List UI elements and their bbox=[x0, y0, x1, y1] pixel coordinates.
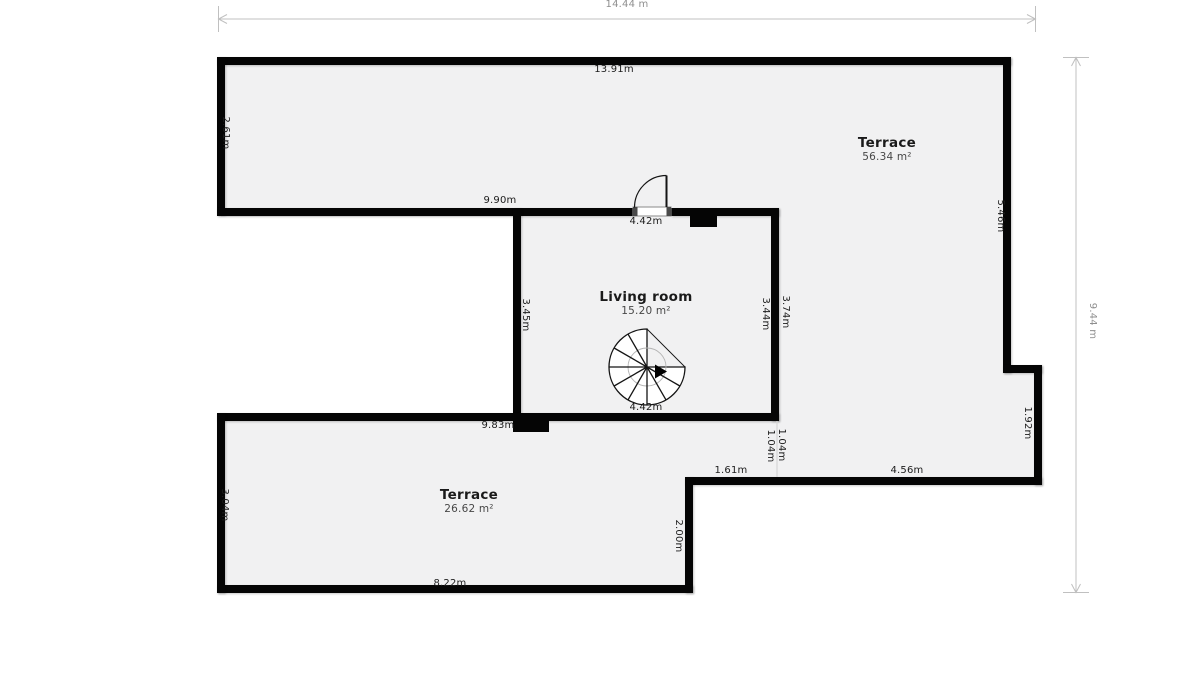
room-label-terrace-lower: Terrace bbox=[440, 487, 498, 503]
dim-lower-inner: 2.00m bbox=[673, 519, 683, 552]
dimension-arrow-icon bbox=[219, 15, 228, 24]
dim-living-bottom: 4.42m bbox=[629, 403, 662, 413]
room-label-terrace-upper: Terrace bbox=[858, 135, 916, 151]
room-area-living-room: 15.20 m² bbox=[621, 305, 670, 317]
dim-bottom-wall: 8.22m bbox=[433, 579, 466, 589]
wall-stub-upper[interactable] bbox=[690, 216, 717, 227]
floor-plan-canvas: 14.44 m 9.44 m 13.91m 2.61m 9.90m 4.42m … bbox=[0, 0, 1200, 675]
dimension-arrow-icon bbox=[1072, 58, 1081, 67]
wall-mid-upper-left[interactable] bbox=[217, 208, 634, 216]
dimension-arrow-icon bbox=[1072, 584, 1081, 593]
dim-step-right: 4.56m bbox=[890, 466, 923, 476]
wall-mid-upper-right[interactable] bbox=[671, 208, 779, 216]
dim-mid-wall: 9.90m bbox=[483, 196, 516, 206]
dim-living-right-outer: 3.74m bbox=[780, 295, 790, 328]
dim-lower-mid-wall: 9.83m bbox=[481, 421, 514, 431]
dim-living-left: 3.45m bbox=[520, 298, 530, 331]
wall-stub-lower[interactable] bbox=[513, 421, 549, 432]
dim-lower-left: 3.04m bbox=[219, 488, 229, 521]
dimension-line-right bbox=[1063, 58, 1089, 593]
dim-right-step: 1.92m bbox=[1022, 406, 1032, 439]
dim-seg-outer: 1.04m bbox=[776, 428, 786, 461]
wall-living-right[interactable] bbox=[771, 208, 779, 421]
floor-terrace-upper-right[interactable] bbox=[779, 215, 1007, 423]
dim-upper-left: 2.61m bbox=[220, 116, 230, 149]
room-label-living-room: Living room bbox=[599, 289, 692, 305]
dim-upper-right: 5.46m bbox=[995, 199, 1005, 232]
dim-door-width: 4.42m bbox=[629, 217, 662, 227]
dim-living-right-inner: 3.44m bbox=[760, 297, 770, 330]
room-area-terrace-upper: 56.34 m² bbox=[862, 151, 911, 163]
room-area-terrace-lower: 26.62 m² bbox=[444, 503, 493, 515]
dim-step-left: 1.61m bbox=[714, 466, 747, 476]
wall-step-bottom[interactable] bbox=[685, 477, 1042, 485]
dimension-arrow-icon bbox=[1027, 15, 1036, 24]
wall-right-lower[interactable] bbox=[1034, 365, 1042, 485]
dim-top-wall: 13.91m bbox=[594, 65, 634, 75]
dim-overall-width: 14.44 m bbox=[606, 0, 649, 10]
dim-seg-inner: 1.04m bbox=[765, 429, 775, 462]
wall-bottom-right-vertical[interactable] bbox=[685, 477, 693, 593]
dim-overall-height: 9.44 m bbox=[1087, 303, 1097, 339]
